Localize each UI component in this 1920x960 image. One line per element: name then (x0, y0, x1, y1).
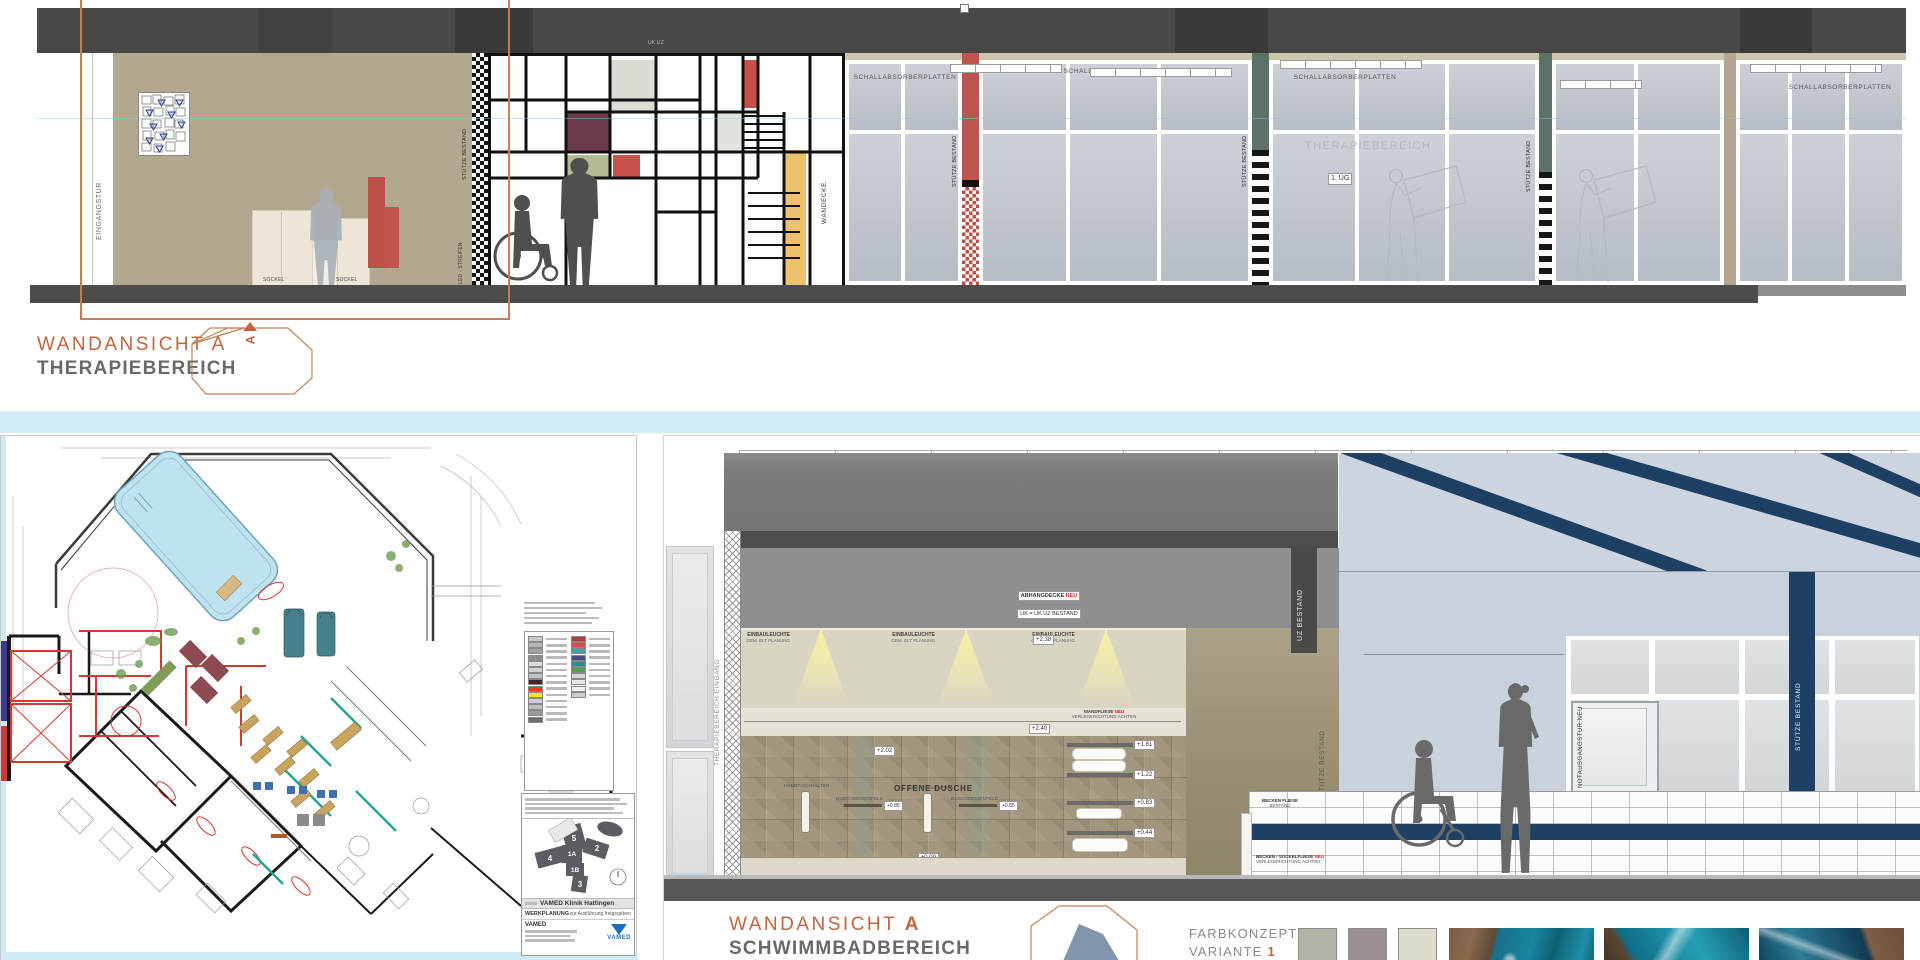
ceiling-dim-line (744, 721, 1181, 722)
glass-pane (1792, 134, 1845, 281)
ceiling-stripes (1339, 453, 1920, 571)
bottom-title: WANDANSICHT A (729, 914, 921, 936)
window-pane (1745, 640, 1829, 694)
bench-step (1241, 813, 1252, 878)
ceiling-block (258, 8, 333, 53)
notausgang-neu: NEU (1578, 706, 1584, 720)
stuetze-bestand-label-bottom: STÜTZE BESTAND (1319, 701, 1326, 796)
glass-pane (1070, 134, 1157, 281)
color-swatch-1 (1298, 928, 1337, 960)
becken-fliese-label: BECKEN FLIESE BESTAND (1262, 798, 1298, 808)
glass-pane (983, 134, 1066, 281)
beam-band-dark (724, 531, 1338, 548)
cell-lightgray (610, 60, 656, 112)
wing-5: 5 (572, 834, 577, 843)
shelf (1067, 831, 1133, 835)
stuetze-bestand-label: STÜTZE BESTAND (952, 125, 958, 187)
therapiebereich-watermark: THERAPIEBEREICH (1305, 140, 1431, 152)
plan-titleblock: 5 4 1A 1B 2 3 VAMED Klinik Hattingen WER… (521, 793, 635, 956)
selection-grip (960, 4, 969, 13)
bottom-subtitle: SCHWIMMBADBEREICH (729, 938, 971, 960)
company-row: VAMED VAMED (522, 920, 634, 946)
legend-row (571, 692, 610, 698)
vamed-logo-icon (611, 924, 627, 935)
bottom-title-word: WANDANSICHT (729, 914, 897, 935)
eingang-label: THERAPIEBEREICH EINGANG (714, 636, 721, 766)
level-044: +0.44 (1134, 828, 1155, 838)
level-122: +1.22 (1134, 770, 1155, 780)
company-name: VAMED (525, 922, 577, 928)
plan-notes (524, 599, 613, 627)
led-streifen-label: LED - STREIFEN (458, 232, 464, 284)
cabinet-divider (281, 212, 282, 283)
door-inner (672, 758, 708, 874)
glass-pane (1638, 64, 1720, 130)
glass-pane (983, 64, 1066, 130)
guide-line-teal (37, 118, 1906, 119)
level-085: +0.85 (884, 801, 903, 811)
beam-band (724, 453, 1338, 533)
wing-2: 2 (595, 844, 600, 853)
mood-photo-coast-2 (1604, 928, 1749, 960)
color-swatch-3 (1398, 928, 1437, 960)
pool-ceiling (1339, 453, 1920, 571)
wandfliese-label: WANDFLIESE NEU VERLEGERICHTUNG ACHTEN (1049, 709, 1159, 719)
badge-pictogram (1063, 924, 1119, 960)
abhangdecke-neu: NEU (1066, 593, 1078, 599)
cell-red (613, 155, 640, 178)
release-note: zur Ausführung freigegeben (570, 911, 631, 917)
floor-band (30, 285, 1758, 303)
column-checkered (472, 53, 488, 285)
pool-wall-dim (1364, 654, 1564, 655)
pool-figures (1386, 681, 1566, 879)
wing-1b: 1B (571, 867, 580, 874)
farbkonzept-line2: VARIANTE 1 (1189, 944, 1276, 959)
section-marker-letter: A (243, 336, 257, 345)
dimension-chain (1280, 60, 1422, 69)
cabinet (252, 210, 314, 287)
window-pane (1655, 640, 1739, 694)
becken-sockel-sub: VERLEGERICHTUNG ACHTEN (1256, 859, 1324, 864)
shelf (1067, 773, 1133, 777)
glass-pane (849, 134, 901, 281)
glass-pane (1792, 64, 1845, 130)
glass-pane (1556, 64, 1634, 130)
vamed-logo: VAMED (607, 922, 631, 944)
abhangdecke-label: ABHANGDECKE NEU UK = UK UZ BESTAND (994, 584, 1104, 620)
level-161: +1.61 (1134, 740, 1155, 750)
glass-pane (1849, 64, 1902, 130)
dimension-chain (1090, 68, 1232, 77)
uz-column (1291, 546, 1317, 653)
becken-sockel-label: BECKEN / SOCKELFLIESE NEU VERLEGERICHTUN… (1256, 854, 1324, 864)
schall-label: SCHALLABSORBERPLATTEN (1294, 74, 1397, 81)
duschbedienfeld-label: DUSCHBEDIENFELD (836, 796, 883, 801)
variante-text: VARIANTE (1189, 944, 1263, 959)
equipment-green-bench (141, 660, 176, 695)
plan-legend-left (528, 636, 567, 786)
project-row: VAMED Klinik Hattingen (522, 898, 634, 909)
abhangdecke-text: ABHANGDECKE (1021, 593, 1064, 599)
glass-pane (1273, 134, 1355, 281)
upper-wall-right (1317, 548, 1339, 628)
sockel-label: SOCKEL (263, 277, 285, 283)
dimension-chain (1560, 80, 1642, 89)
glass-pane (1449, 64, 1535, 130)
wandfliese-sub: VERLEGERICHTUNG ACHTEN (1049, 714, 1159, 719)
wandecke-label: WANDECKE (821, 182, 828, 224)
mood-photo-coast-1 (1449, 928, 1594, 960)
uk-uz-label: UK UZ (648, 40, 664, 46)
towels (1072, 838, 1128, 852)
hatched-column (724, 531, 741, 879)
equipment-blue (253, 782, 337, 798)
divider-band (0, 411, 1920, 433)
column-beige (1724, 53, 1736, 285)
column-green (1539, 53, 1552, 172)
ceiling-block (1740, 8, 1812, 53)
cell-red2 (743, 60, 758, 108)
uz-bestand-label: UZ BESTAND (1297, 561, 1304, 641)
towels (1072, 748, 1126, 760)
wing-4: 4 (548, 854, 553, 863)
einbauleuchte-sub: GEM. ELT PLANUNG (871, 638, 935, 643)
towels (1072, 760, 1126, 772)
notausgang-label: NOTAUSGANGSTÜR NEU (1578, 706, 1584, 788)
door-inner (672, 553, 708, 741)
level-085: +0.85 (999, 801, 1018, 811)
eingangstuer-label: EINGANGSTÜR (96, 150, 103, 240)
floor-plan-sheet: 5 4 1A 1B 2 3 VAMED Klinik Hattingen WER… (0, 435, 637, 960)
stuetze-bestand-label: STÜTZE BESTAND (462, 115, 468, 180)
red-cabinet-tall (368, 177, 385, 268)
duschbedienfeld-label: DUSCHBEDIENFELD (951, 796, 998, 801)
notausgang-text: NOTAUSGANGSTÜR (1578, 722, 1584, 788)
navy-column (1789, 572, 1815, 791)
cell-yellow (784, 150, 806, 285)
exit-door-inner (1579, 708, 1647, 786)
pool-elevation-sheet: STÜTZE BESTAND UZ BESTAND ABHANGDECKE NE… (663, 435, 1920, 960)
level-240: +2.40 (1029, 724, 1050, 734)
plan-gray-boxes (297, 814, 325, 826)
section-badge-bottom (1029, 904, 1141, 960)
level-202: +2.02 (874, 746, 895, 756)
plan-legend (524, 631, 614, 791)
wheelchair-figure-bottom (1393, 740, 1463, 846)
glass-pane (1849, 134, 1902, 281)
entrance-glass-door (666, 751, 714, 881)
project-name: VAMED Klinik Hattingen (540, 900, 614, 907)
einbauleuchte-label: EINBAULEUCHTE GEM. ELT PLANUNG (871, 632, 935, 643)
wall-artwork (138, 92, 190, 156)
pool-bench (1249, 791, 1920, 877)
revision-table (522, 794, 634, 819)
shelf (1067, 743, 1133, 747)
person-silhouette-light (308, 188, 344, 287)
sketch-figure (1577, 166, 1656, 282)
ref-frame-left (80, 0, 82, 318)
sketch-figure (1387, 166, 1466, 282)
column-red-checker (962, 187, 979, 285)
towels (1076, 808, 1122, 819)
equipment-gym (231, 695, 362, 838)
handtuchhalter-label: HANDTUCHHALTER (784, 783, 829, 788)
red-cabinet-low (385, 207, 399, 268)
color-swatch-2 (1348, 928, 1387, 960)
schall-label: SCHALLABSORBERPLATTEN (854, 74, 957, 81)
dimension-chain (950, 64, 1062, 73)
window-pane (1655, 700, 1739, 791)
schall-label: SCHALLABSORBERPLATTEN (1789, 84, 1892, 91)
ceiling-block (1175, 8, 1268, 53)
floor-band-light (1758, 285, 1906, 296)
farbkonzept-line1: FARBKONZEPT (1189, 926, 1298, 941)
walls-red (11, 568, 313, 898)
geschoss-tag: 1. UG (1328, 173, 1352, 185)
stuetze-bestand-label: STÜTZE BESTAND (1242, 125, 1248, 187)
sketch-figures (1370, 160, 1700, 286)
window-pane (1835, 640, 1915, 694)
shelf (1067, 801, 1133, 805)
shower-handle (923, 793, 932, 833)
mood-photo-coast-3 (1759, 928, 1904, 960)
column-green-striped (1252, 53, 1269, 150)
window-pane (1745, 700, 1829, 791)
standing-woman-figure (1499, 683, 1539, 873)
ceiling-block (455, 8, 533, 53)
becken-fliese-sub: BESTAND (1262, 803, 1298, 808)
ref-frame-right (508, 0, 510, 318)
column-stripes (1252, 150, 1269, 285)
glass-pane (905, 134, 958, 281)
shower-handle (801, 791, 810, 833)
shower-bar (844, 804, 882, 807)
presentation-board: EINGANGSTÜR SOCKEL SOC (0, 0, 1920, 960)
level-083: +0.83 (1134, 798, 1155, 808)
glass-pane (1740, 134, 1788, 281)
handtuchhalter-label: HANDTUCHHALTER (907, 785, 952, 790)
variante-number: 1 (1267, 944, 1275, 959)
window-pane (1835, 700, 1915, 791)
shower-bar (959, 804, 997, 807)
vamed-logo-text: VAMED (607, 935, 631, 941)
window-pane (1571, 640, 1649, 694)
exit-door (1571, 701, 1659, 795)
pool-floor-band (664, 879, 1920, 901)
glass-pane (1740, 64, 1788, 130)
glass-pane (1161, 134, 1248, 281)
stuetze-bestand-navy-label: STÜTZE BESTAND (1795, 651, 1802, 751)
legend-row (528, 716, 567, 722)
bench-navy-stripe (1249, 824, 1920, 840)
equipment-teal (284, 609, 335, 657)
abhangdecke-sub: UK = UK UZ BESTAND (1017, 609, 1081, 619)
ref-frame-bottom (80, 318, 510, 320)
dimension-chain (1750, 64, 1882, 73)
plan-legend-right (571, 636, 610, 786)
entrance-glass-door (666, 546, 714, 748)
phase: WERKPLANUNG (525, 911, 569, 917)
key-plan: 5 4 1A 1B 2 3 (522, 819, 634, 893)
wing-1a: 1A (568, 851, 577, 858)
level-238: +2.38 (1033, 635, 1054, 645)
column-red-base (962, 180, 979, 187)
bottom-title-letter: A (905, 914, 921, 935)
sill-band (845, 53, 1906, 60)
wing-3: 3 (578, 880, 583, 889)
phase-row: WERKPLANUNG zur Ausführung freigegeben (522, 909, 634, 920)
top-elevation-panel: EINGANGSTÜR SOCKEL SOC (0, 0, 1920, 410)
standing-man-figure (558, 158, 602, 287)
section-marker-arrow (243, 322, 257, 331)
